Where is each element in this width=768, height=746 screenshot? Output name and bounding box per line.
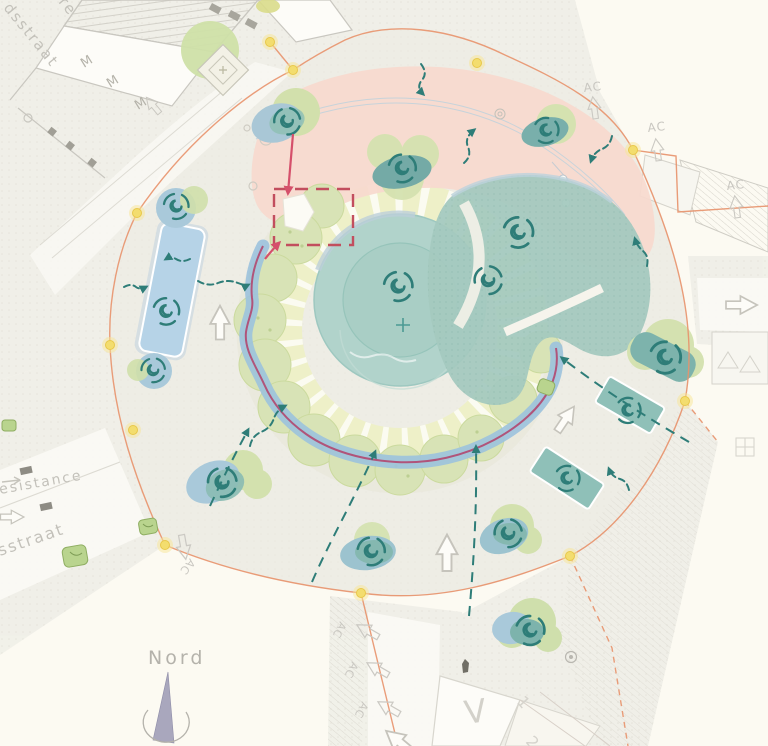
rain-pond-teal xyxy=(493,523,527,545)
ac-label: AC xyxy=(177,556,198,577)
ac-label: AC xyxy=(647,119,667,135)
grid-vault-cross xyxy=(736,438,754,456)
north-label: Nord xyxy=(148,647,205,669)
north-compass: Nord xyxy=(143,647,205,743)
compass-needle-icon xyxy=(153,672,174,743)
building-block xyxy=(712,332,768,384)
tree-cluster xyxy=(242,469,272,499)
ring-marker-dot xyxy=(569,655,573,659)
masterplan-canvas: M M M xyxy=(0,0,768,746)
tree-cluster xyxy=(180,186,208,214)
tree-cluster xyxy=(127,359,149,381)
street-bush xyxy=(2,420,16,431)
street-bush xyxy=(61,544,88,568)
ac-label: AC xyxy=(726,177,746,193)
ac-label: AC xyxy=(583,79,603,95)
south-roadway xyxy=(368,612,440,746)
plan-drawing: M M M xyxy=(0,0,768,746)
